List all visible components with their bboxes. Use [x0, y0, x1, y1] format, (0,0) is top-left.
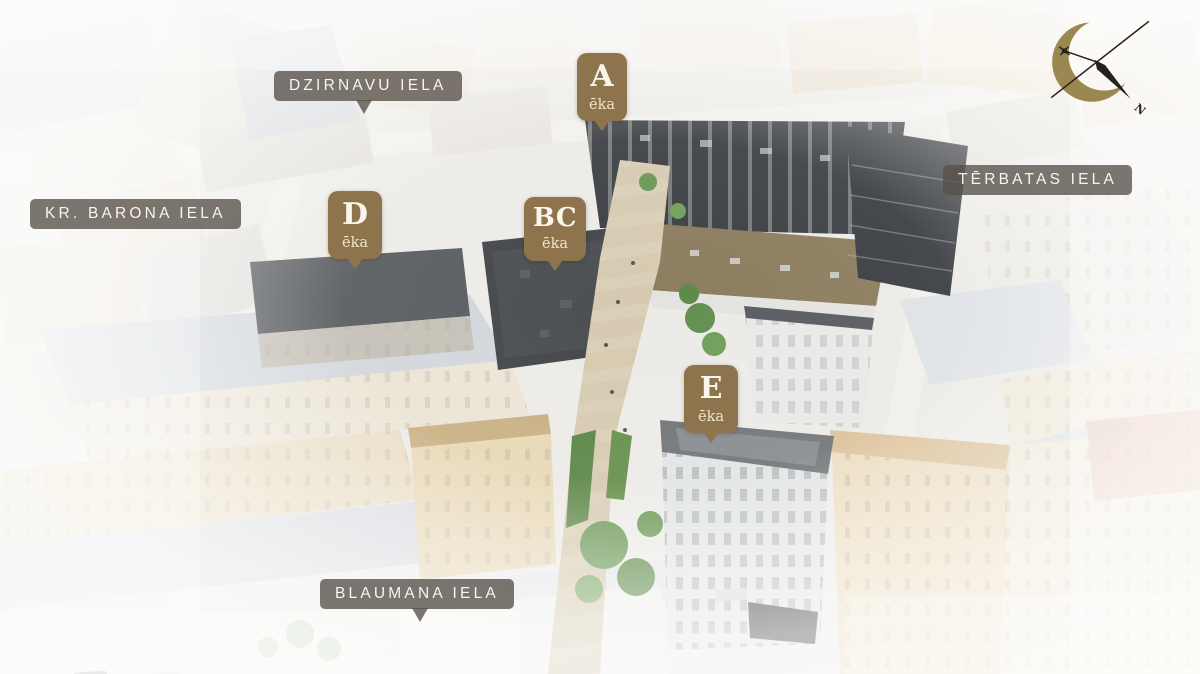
compass-logo: N [1038, 4, 1158, 116]
street-label-text: TĒRBATAS IELA [958, 171, 1117, 188]
crescent-shape [1039, 4, 1157, 116]
street-label-dzirnavu-iela: DZIRNAVU IELA [274, 71, 462, 101]
label-pointer-icon [356, 100, 372, 114]
building-marker-d[interactable]: D ēka [328, 191, 382, 259]
marker-sublabel: ēka [589, 98, 615, 113]
marker-letter: BC [533, 205, 577, 232]
street-label-terbatas-iela: TĒRBATAS IELA [943, 165, 1132, 195]
marker-letter: E [700, 373, 723, 405]
marker-sublabel: ēka [542, 237, 568, 252]
building-marker-a[interactable]: A ēka [577, 53, 627, 121]
street-label-text: DZIRNAVU IELA [289, 77, 447, 94]
aerial-site-plan: DZIRNAVU IELA KR. BARONA IELA TĒRBATAS I… [0, 0, 1200, 674]
building-marker-e[interactable]: E ēka [684, 365, 738, 433]
label-pointer-icon [412, 608, 428, 622]
street-label-kr-barona-iela: KR. BARONA IELA [30, 199, 241, 229]
building-marker-bc[interactable]: BC ēka [524, 197, 586, 261]
compass-icon: N [1038, 4, 1158, 116]
marker-letter: D [342, 199, 368, 231]
street-label-blaumana-iela: BLAUMANA IELA [320, 579, 514, 609]
street-label-text: BLAUMANA IELA [335, 585, 499, 602]
marker-letter: A [590, 61, 613, 93]
marker-sublabel: ēka [342, 236, 368, 251]
marker-sublabel: ēka [698, 410, 724, 425]
street-label-text: KR. BARONA IELA [45, 205, 226, 222]
